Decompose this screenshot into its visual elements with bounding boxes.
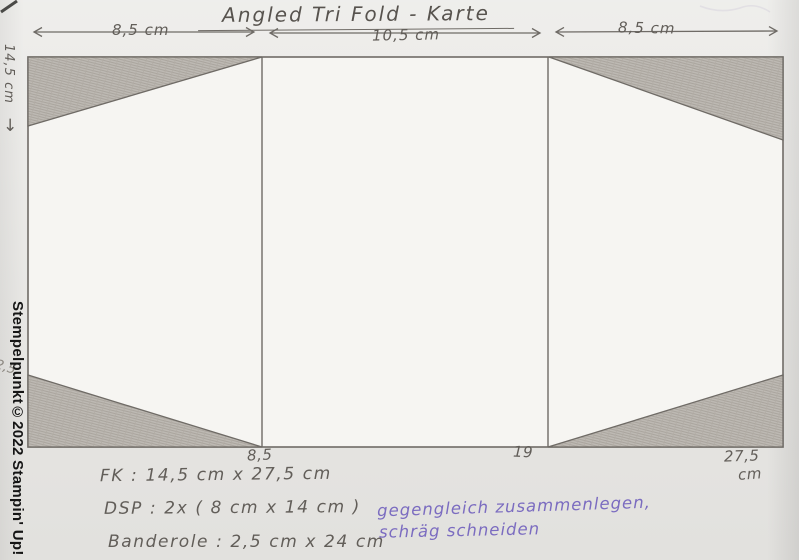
- fold-mark-19: 19: [513, 443, 534, 462]
- note-fk: FK : 14,5 cm x 27,5 cm: [100, 464, 332, 486]
- dimension-label-right-panel: 8,5 cm: [618, 18, 676, 37]
- dimension-label-card-height: 14,5 cm: [1, 44, 16, 104]
- instruction-line-2: schräg schneiden: [379, 519, 541, 541]
- down-arrow-icon: ↓: [3, 116, 17, 136]
- page-title: Angled Tri Fold - Karte: [198, 1, 514, 31]
- copyright-watermark: Stempelpunkt©2022 Stampin' Up!: [9, 301, 26, 556]
- total-width-value: 27,5: [724, 446, 760, 465]
- show-through-artifact: [700, 6, 770, 12]
- total-width-unit: cm: [737, 464, 762, 484]
- note-dsp: DSP : 2x ( 8 cm x 14 cm ): [104, 497, 361, 519]
- scanned-template-sheet: Angled Tri Fold - Karte 8,5 cm 10,5 cm 8…: [0, 0, 799, 560]
- dimension-label-left-panel: 8,5 cm: [112, 21, 169, 39]
- note-banderole: Banderole : 2,5 cm x 24 cm: [108, 532, 385, 552]
- dimension-label-middle-panel: 10,5 cm: [372, 25, 440, 44]
- scan-corner-mark: [1, 1, 17, 12]
- fold-mark-8-5: 8,5: [247, 445, 273, 464]
- card-outline: [28, 57, 783, 447]
